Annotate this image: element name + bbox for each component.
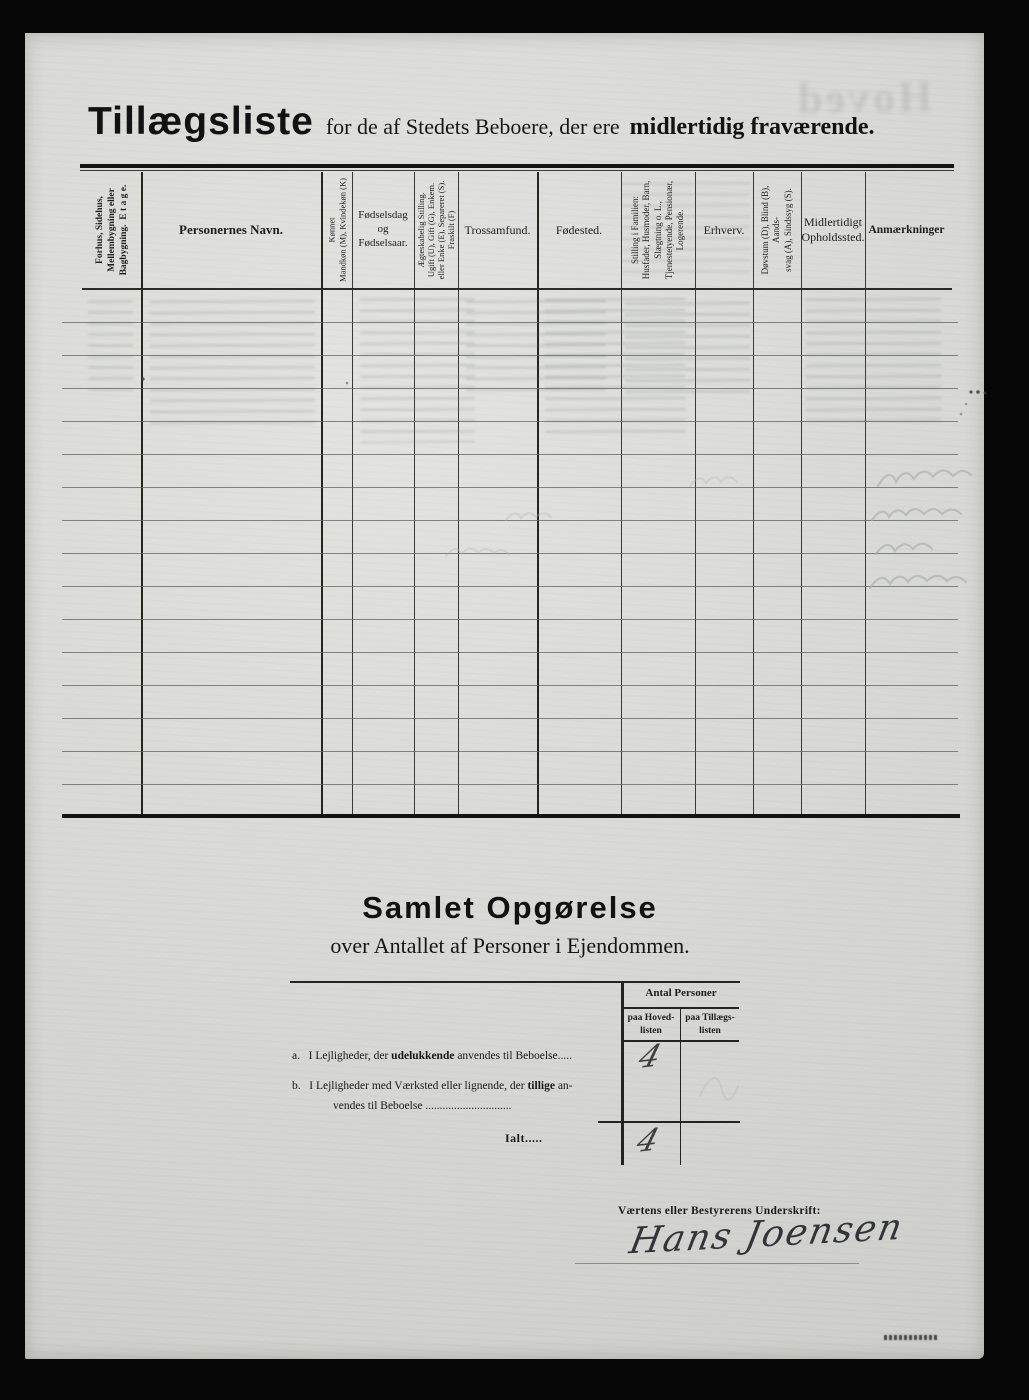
col-tillaegslisten-header: paa Tillægs- listen — [681, 1012, 739, 1038]
col-hovedlisten-header: paa Hoved- listen — [622, 1012, 680, 1038]
column-header-disability: Døvstum (D), Blind (B), Aands- svag (A),… — [753, 172, 801, 288]
column-header-sex: Kønnet Mandkøn (M), Kvindekøn (K) — [321, 172, 352, 288]
table-row — [62, 587, 958, 620]
antal-personer-header: Antal Personer — [622, 987, 740, 999]
document-title: Tillægsliste for de af Stedets Beboere, … — [88, 100, 875, 144]
table-row — [62, 719, 958, 752]
table-row — [62, 455, 958, 488]
row-a-text: I Lejligheder, der — [309, 1050, 392, 1062]
title-main: Tillægsliste — [88, 100, 314, 144]
table-row — [62, 752, 958, 785]
table-row — [62, 389, 958, 422]
column-header-birthplace: Fødested. — [537, 172, 621, 288]
column-header-name: Personernes Navn. — [141, 172, 321, 288]
summary-row-b-line2: vendes til Beboelse ....................… — [333, 1100, 512, 1112]
summary-rule — [623, 1040, 739, 1042]
table-row — [62, 356, 958, 389]
column-header-birthdate: Fødselsdag og Fødselsaar. — [352, 172, 414, 288]
table-top-rule-thin — [80, 170, 954, 171]
column-header-religion: Trossamfund. — [458, 172, 537, 288]
summary-row-a: a. I Lejligheder, der udelukkende anvend… — [292, 1050, 572, 1062]
summary-row-b: b. I Lejligheder med Værksted eller lign… — [292, 1080, 573, 1092]
table-row — [62, 620, 958, 653]
column-header-temporary-residence: Midlertidigt Opholdssted. — [801, 172, 865, 288]
column-header-marital: Ægteskabelig Stilling. Ugift (U), Gift (… — [414, 172, 458, 288]
title-bold: midlertidig fraværende. — [630, 114, 875, 141]
census-table: Forhus, Sidehus, Mellembygning eller Bag… — [84, 166, 948, 818]
table-row — [62, 554, 958, 587]
row-a-index: a. — [292, 1050, 300, 1062]
table-row — [62, 521, 958, 554]
table-body-rows — [62, 290, 958, 818]
summary-vline-left — [621, 981, 624, 1165]
table-row — [62, 488, 958, 521]
ialt-label: Ialt..... — [505, 1131, 543, 1146]
row-b-index: b. — [292, 1080, 301, 1092]
column-header-family-position: Stilling i Familien: Husfader, Husmoder,… — [621, 172, 695, 288]
table-row — [62, 323, 958, 356]
table-row — [62, 290, 958, 323]
signature-line — [575, 1263, 859, 1264]
summary-rule — [623, 1007, 739, 1009]
summary-subtitle: over Antallet af Personer i Ejendommen. — [260, 933, 760, 959]
table-row — [62, 653, 958, 686]
title-middle: for de af Stedets Beboere, der ere — [326, 114, 620, 140]
table-bottom-rule — [62, 814, 960, 818]
column-header-building-label: Forhus, Sidehus, Mellembygning eller Bag… — [95, 173, 131, 287]
column-header-occupation: Erhverv. — [695, 172, 753, 288]
row-b-text: I Lejligheder med Værksted eller lignend… — [309, 1080, 527, 1092]
scan-viewer: { "header": { "title_main": "Tillægslist… — [0, 0, 1029, 1400]
row-b-bold: tillige — [527, 1080, 554, 1092]
ialt-rule — [598, 1121, 740, 1123]
summary-vline-mid — [680, 1007, 681, 1165]
printer-mark — [884, 1335, 938, 1340]
row-b-tail: an- — [555, 1080, 573, 1092]
summary-title: Samlet Opgørelse — [310, 890, 710, 926]
column-header-building: Forhus, Sidehus, Mellembygning eller Bag… — [84, 172, 141, 288]
column-header-family-position-label: Stilling i Familien: Husfader, Husmoder,… — [630, 173, 686, 287]
column-header-sex-label: Kønnet Mandkøn (M), Kvindekøn (K) — [326, 173, 347, 287]
table-row — [62, 422, 958, 455]
row-a-tail: anvendes til Beboelse..... — [454, 1050, 572, 1062]
column-header-disability-label: Døvstum (D), Blind (B), Aands- svag (A),… — [760, 173, 794, 287]
table-top-rule — [80, 164, 954, 168]
table-row — [62, 686, 958, 719]
row-a-bold: udelukkende — [391, 1050, 454, 1062]
column-header-remarks: Anmærkninger — [865, 172, 948, 288]
column-header-marital-label: Ægteskabelig Stilling. Ugift (U), Gift (… — [416, 173, 456, 287]
summary-top-rule — [290, 981, 740, 983]
